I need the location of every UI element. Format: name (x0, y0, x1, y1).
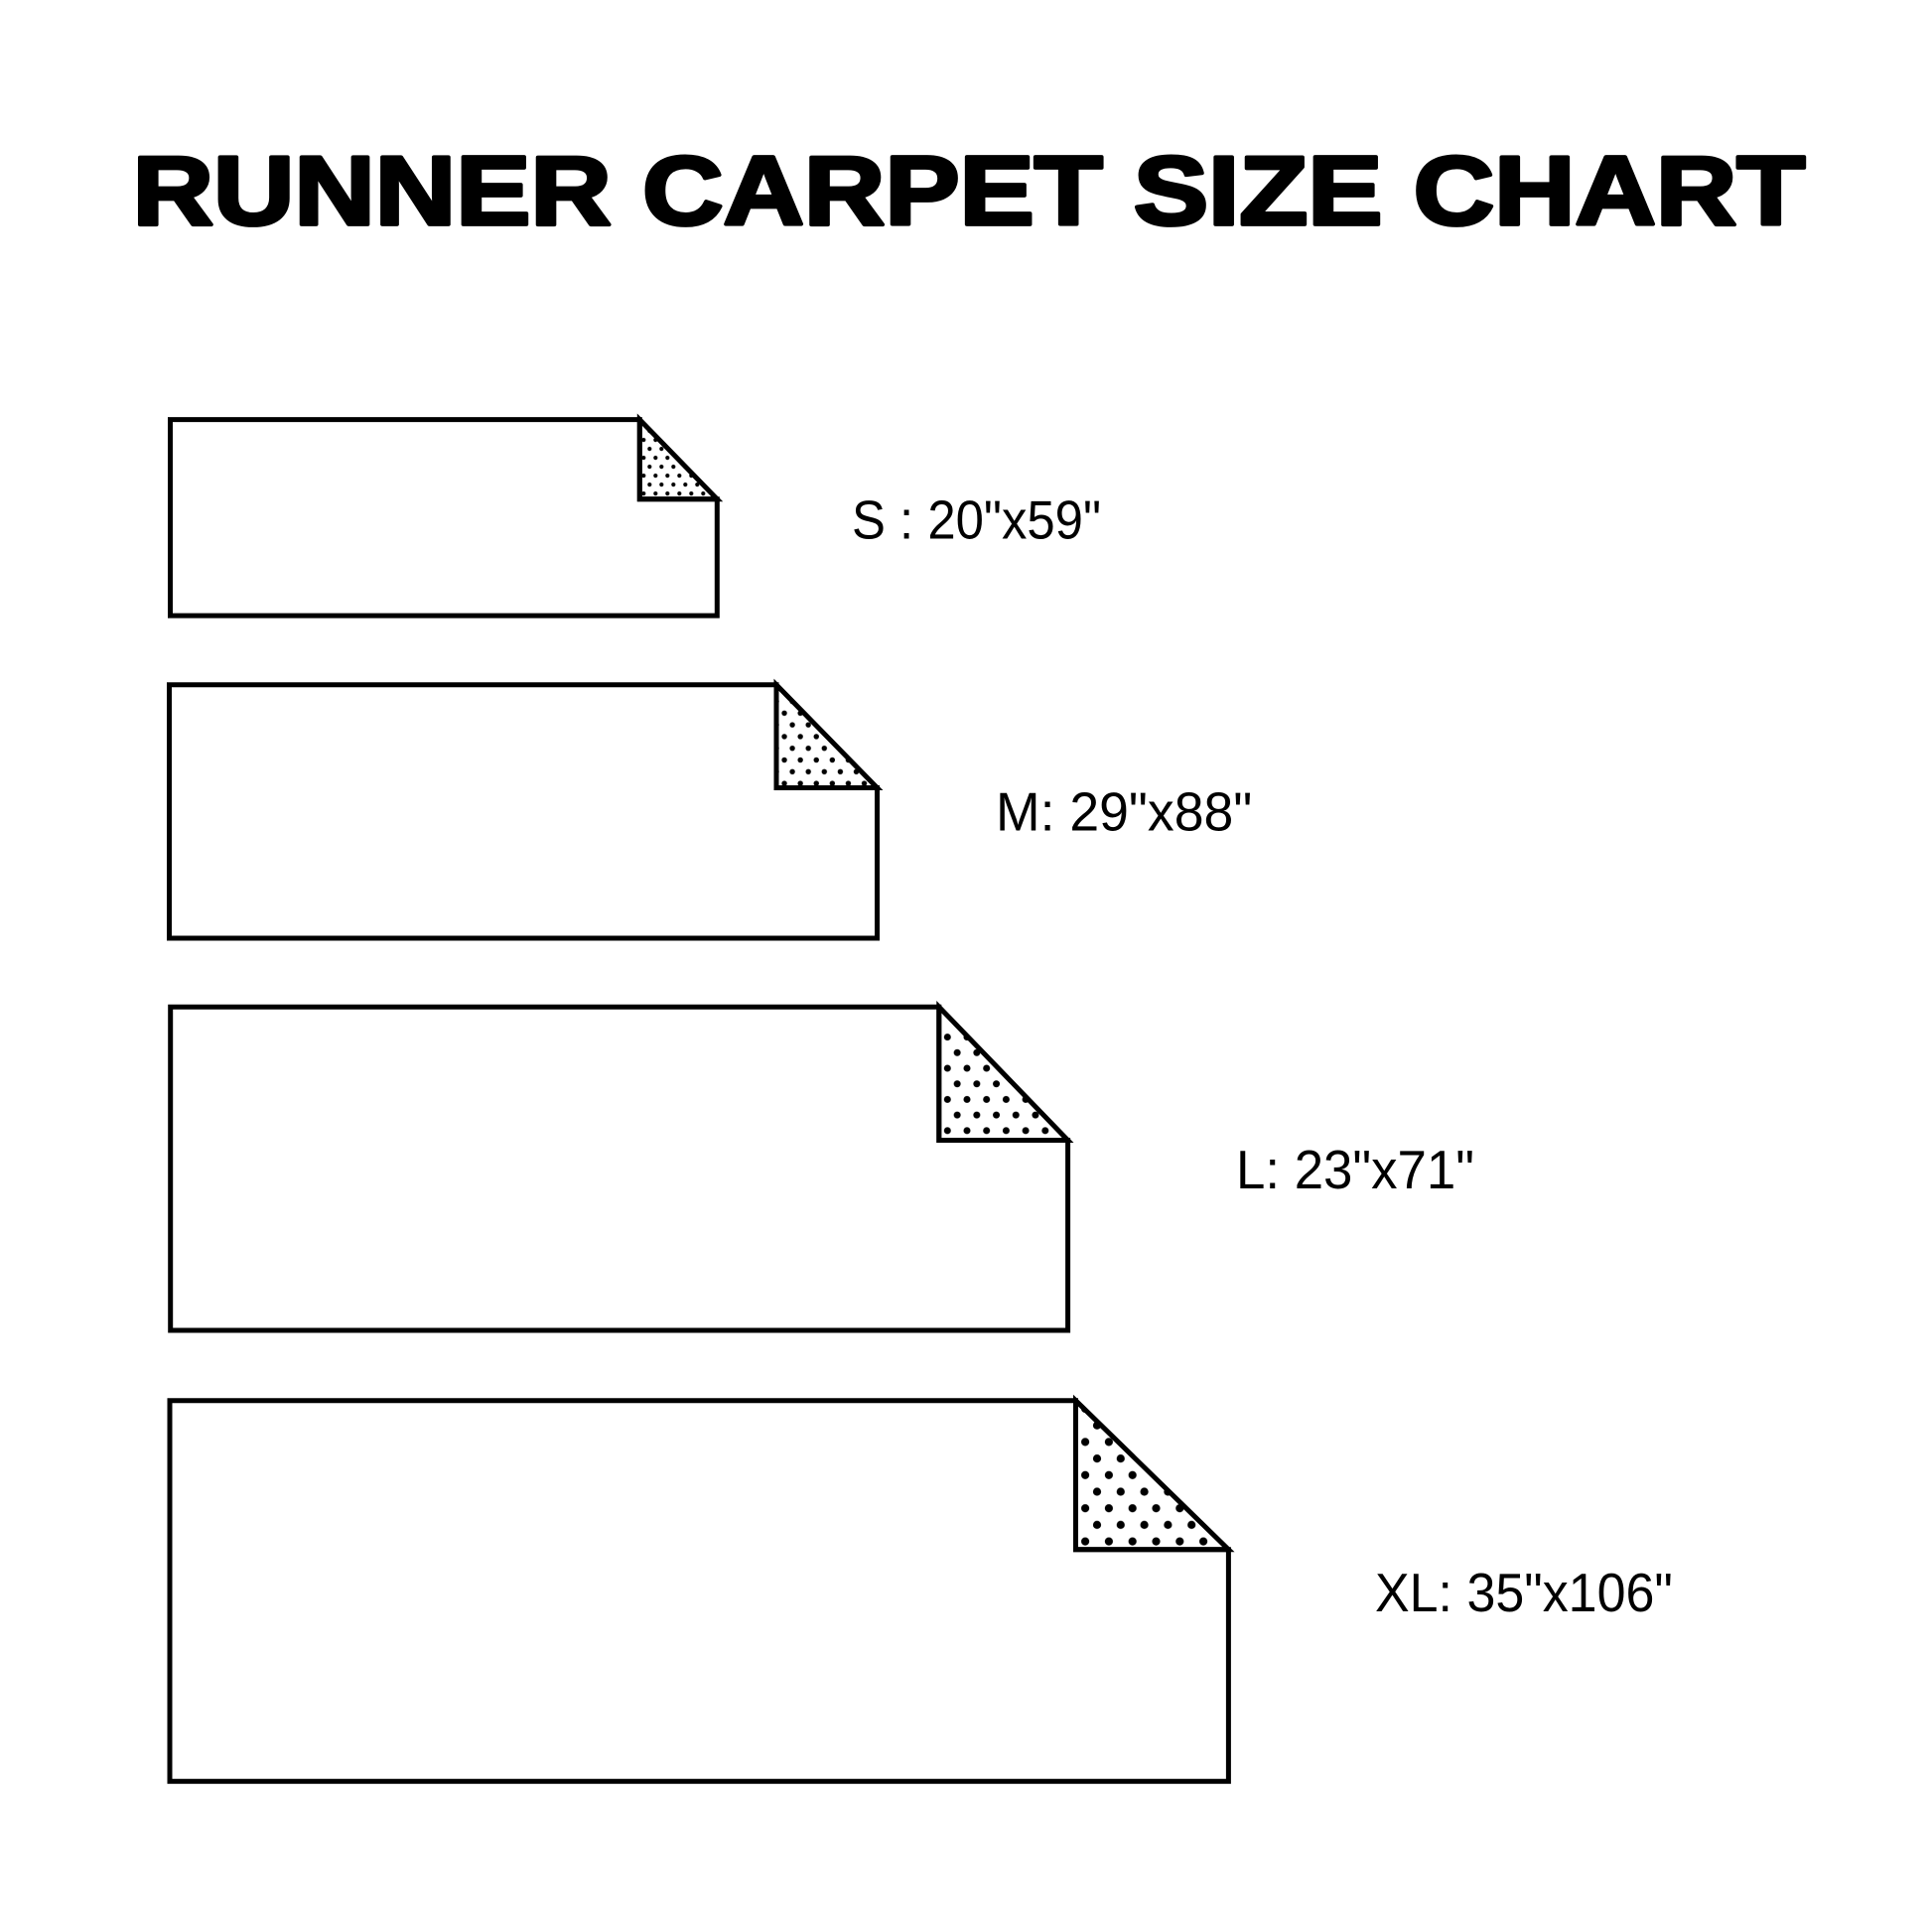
svg-text:XL: 35"x106": XL: 35"x106" (1375, 1563, 1673, 1623)
svg-text:RUNNER CARPET SIZE CHART: RUNNER CARPET SIZE CHART (133, 137, 1806, 245)
svg-text:L: 23"x71": L: 23"x71" (1236, 1140, 1474, 1200)
svg-text:M: 29"x88": M: 29"x88" (996, 781, 1252, 843)
svg-text:S : 20"x59": S : 20"x59" (852, 490, 1101, 551)
